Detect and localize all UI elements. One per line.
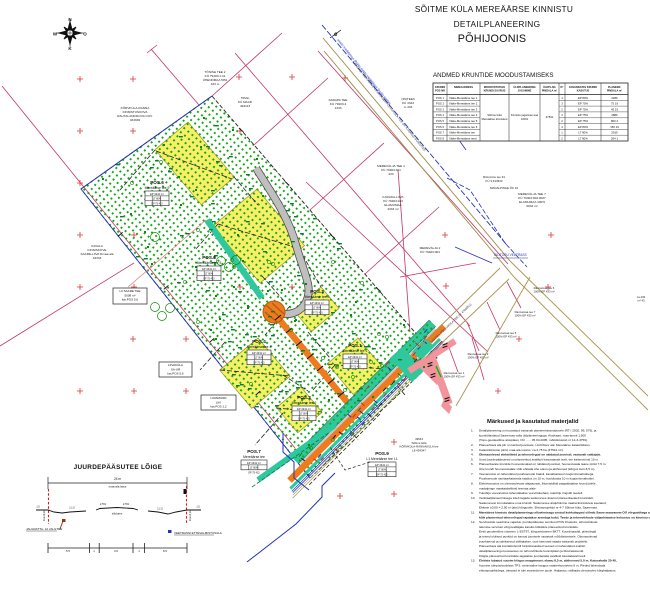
- svg-text:KASUTUS: KASUTUS: [577, 88, 590, 92]
- svg-text:24 m: 24 m: [114, 477, 121, 481]
- svg-text:Tuletõrje veevarustus lahendat: Tuletõrje veevarustus lahendatakse veevõ…: [479, 491, 583, 495]
- svg-text:LT 80%: LT 80%: [313, 307, 322, 310]
- svg-text:LT 80%: LT 80%: [300, 413, 309, 416]
- svg-text:EP 75 415: EP 75 415: [311, 312, 323, 315]
- svg-text:Mereäärse tee 5: Mereäärse tee 5: [197, 261, 222, 265]
- svg-text:433: 433: [388, 172, 393, 176]
- svg-text:talumise servituut võrguvaldaj: talumise servituut võrguvaldajate kasuks…: [479, 525, 579, 529]
- svg-text:kat.POS 1,2: kat.POS 1,2: [210, 404, 227, 408]
- svg-text:NIMI/AADRESS: NIMI/AADRESS: [454, 85, 473, 89]
- svg-text:Mereäärse tee 1: Mereäärse tee 1: [343, 349, 368, 353]
- svg-text:LT 80%: LT 80%: [250, 467, 259, 470]
- svg-text:Väike-Mereäärse teed: Väike-Mereäärse teed: [449, 136, 477, 140]
- svg-text:detailplaneeringu koosseisus o: detailplaneeringu koosseisus on tehnovõr…: [479, 549, 584, 553]
- svg-text:POS 3: POS 3: [436, 107, 444, 111]
- svg-text:EP 4341 m²: EP 4341 m²: [297, 407, 311, 411]
- svg-text:EP 75%: EP 75%: [578, 119, 589, 123]
- svg-text:VEETRASSI ETTEVALMISTUSALA: VEETRASSI ETTEVALMISTUSALA: [174, 531, 222, 535]
- svg-text:EP 75 415: EP 75 415: [376, 474, 388, 477]
- svg-text:LT 80%: LT 80%: [378, 469, 387, 472]
- svg-text:ehitusprojektidega, väravad ei: ehitusprojektidega, väravad ei tohi avan…: [479, 568, 616, 572]
- svg-text:TALITORU VEETRASS: TALITORU VEETRASS: [493, 253, 526, 257]
- svg-text:Mereäärse tee 3: Mereäärse tee 3: [305, 295, 330, 299]
- svg-text:O: O: [83, 32, 87, 37]
- svg-text:2.5%: 2.5%: [123, 502, 130, 506]
- svg-text:POS.1: POS.1: [348, 343, 362, 348]
- svg-text:433 m: 433 m: [211, 82, 220, 86]
- svg-text:L8 434347: L8 434347: [412, 448, 426, 452]
- svg-text:860 2: 860 2: [611, 119, 618, 123]
- svg-text:Katastriüksuste piirid, maa-al: Katastriüksuste piirid, maa-ala suurus: …: [479, 448, 564, 452]
- svg-text:45 19: 45 19: [611, 107, 618, 111]
- svg-text:kooskõlastatud Saaremaa valla: kooskõlastatud Saaremaa valla üldplaneer…: [479, 433, 586, 437]
- svg-text:POS 6: POS 6: [436, 125, 444, 129]
- svg-text:POS 8: POS 8: [436, 136, 444, 140]
- svg-text:10.: 10.: [471, 496, 475, 500]
- svg-text:JUURDEPÄÄSUTEE LÕIGE: JUURDEPÄÄSUTEE LÕIGE: [74, 462, 163, 471]
- svg-text:POS.9: POS.9: [375, 451, 389, 456]
- svg-text:madalpinge maakaabelliinid tee: madalpinge maakaabelliinid teemaa alale.: [479, 486, 537, 490]
- svg-text:KÜ 3,434543: KÜ 3,434543: [486, 179, 503, 183]
- svg-text:Märkused ja kasutatud materjal: Märkused ja kasutatud materjalid: [487, 419, 579, 425]
- svg-text:LT 80%: LT 80%: [153, 198, 162, 201]
- svg-text:Väike-Mereäärse tee 3: Väike-Mereäärse tee 3: [449, 107, 478, 111]
- svg-text:EP 75 415: EP 75 415: [203, 278, 215, 281]
- svg-text:krundi piir: krundi piir: [188, 510, 192, 521]
- svg-text:Mereäärse kinnistu detailplane: Mereäärse kinnistu detailplaneeringu ell…: [479, 510, 650, 514]
- svg-text:Ühe krundi hoonestusalale võib: Ühe krundi hoonestusalale võib ehitada ü…: [479, 467, 595, 471]
- svg-text:EP 4341 m²: EP 4341 m²: [202, 267, 216, 271]
- svg-text:Puurkaevude sanitaarkaitseala: Puurkaevude sanitaarkaitseala raadius on…: [479, 477, 595, 481]
- svg-text:kat.POS 5,6: kat.POS 5,6: [122, 297, 139, 301]
- svg-text:Mereäärse tee 4: Mereäärse tee 4: [247, 345, 272, 349]
- svg-text:KRUNDI SUURUS: KRUNDI SUURUS: [484, 88, 506, 92]
- svg-text:L1 Mereäärse tee L1: L1 Mereäärse tee L1: [366, 457, 397, 461]
- svg-text:EP 75 415: EP 75 415: [151, 203, 163, 206]
- svg-text:Veevarustus on lahendatud puur: Veevarustus on lahendatud puurkaevude ba…: [479, 472, 594, 476]
- svg-text:5.5: 5.5: [66, 549, 70, 553]
- svg-text:Planeeritava ala piir on kantu: Planeeritava ala piir on kantud joonisel…: [479, 443, 591, 447]
- svg-text:8.5: 8.5: [163, 549, 167, 553]
- svg-text:POS 1: POS 1: [436, 96, 444, 100]
- svg-text:Mereäärse tee 2: Mereäärse tee 2: [292, 401, 317, 405]
- svg-text:100% EP 433 m²: 100% EP 433 m²: [467, 356, 488, 360]
- svg-text:47541: 47541: [546, 115, 554, 119]
- svg-text:JAGAMINE: JAGAMINE: [518, 88, 532, 92]
- svg-text:Kõigile planeeritud kruntidele: Kõigile planeeritud kruntidele tagatakse…: [479, 554, 586, 558]
- svg-text:EP 4341 m²: EP 4341 m²: [252, 351, 266, 355]
- svg-text:Vertikaalplaneerimisega tuleb: Vertikaalplaneerimisega tuleb tagada sad…: [479, 496, 594, 500]
- svg-text:KRUNDI: KRUNDI: [435, 85, 445, 89]
- svg-text:2.5%: 2.5%: [100, 502, 107, 506]
- svg-text:Planeeritavate kruntide hoones: Planeeritavate kruntide hoonestusalad on…: [479, 462, 606, 466]
- svg-text:maa-ala laius: maa-ala laius: [109, 485, 127, 489]
- svg-text:POS.8: POS.8: [202, 255, 216, 260]
- svg-text:Väike-Mereäärse tee 1: Väike-Mereäärse tee 1: [449, 96, 478, 100]
- svg-text:Väike-Mereäärse tee: Väike-Mereäärse tee: [449, 131, 475, 135]
- svg-text:POS.6: POS.6: [150, 180, 164, 185]
- svg-text:43333: 43333: [93, 256, 102, 260]
- svg-text:MADALPINGE ÕK 34: MADALPINGE ÕK 34: [490, 185, 518, 190]
- svg-text:4.: 4.: [471, 453, 474, 457]
- svg-text:2886: 2886: [611, 113, 618, 117]
- svg-text:POS 5: POS 5: [436, 119, 444, 123]
- svg-text:8.: 8.: [471, 482, 474, 486]
- svg-text:2.: 2.: [471, 443, 474, 447]
- svg-text:Väike-Mereäärse tee 5: Väike-Mereäärse tee 5: [449, 119, 478, 123]
- svg-text:Mereäärse tee: Mereäärse tee: [243, 455, 265, 459]
- svg-text:PÕHIJOONIS: PÕHIJOONIS: [458, 32, 527, 45]
- svg-text:PINDALA m²: PINDALA m²: [542, 88, 557, 92]
- svg-text:100% EP 433 m²: 100% EP 433 m²: [533, 290, 554, 294]
- svg-text:Olemasolevad elektriliinid ja: Olemasolevad elektriliinid ja tehnovõrgu…: [479, 453, 601, 457]
- svg-text:EP 4341 m²: EP 4341 m²: [348, 355, 362, 359]
- svg-text:kõik planeeritud tehnovõrgud r: kõik planeeritud tehnovõrgud rajatakse a…: [479, 515, 650, 519]
- svg-text:Sademevesi immutatakse oma kru: Sademevesi immutatakse oma krundil. Sade…: [479, 501, 607, 505]
- svg-text:EP 75 415: EP 75 415: [253, 362, 265, 365]
- svg-text:150 19: 150 19: [610, 125, 619, 129]
- svg-text:EP 4341 m²: EP 4341 m²: [247, 461, 261, 465]
- svg-text:SÕITME KÜLA MEREÄÄRSE KINNISTU: SÕITME KÜLA MEREÄÄRSE KINNISTU: [415, 4, 573, 14]
- svg-text:100%: 100%: [521, 117, 529, 121]
- svg-text:493113: 493113: [240, 104, 250, 108]
- svg-text:5.: 5.: [471, 457, 474, 461]
- svg-text:sõidutee: sõidutee: [112, 512, 123, 516]
- svg-text:4.5: 4.5: [114, 549, 118, 553]
- svg-text:1:1.5: 1:1.5: [69, 507, 75, 510]
- svg-text:Ehitiste ±0.00 = 2,50 m (abs): Ehitiste ±0.00 = 2,50 m (abs) kõrgusele.…: [479, 506, 598, 510]
- svg-text:75 19: 75 19: [611, 102, 618, 106]
- svg-text:3.: 3.: [471, 448, 474, 452]
- svg-text:POS NR: POS NR: [435, 88, 445, 92]
- svg-text:1.: 1.: [471, 429, 474, 433]
- svg-text:EP 80%: EP 80%: [578, 125, 589, 129]
- svg-text:Väike-Mereäärse tee 6: Väike-Mereäärse tee 6: [449, 125, 478, 129]
- svg-text:Uued juurdepääsuteed on planee: Uued juurdepääsuteed on planeeritud aval…: [479, 457, 599, 461]
- svg-text:6.: 6.: [471, 462, 474, 466]
- svg-text:100% EP 433 m²: 100% EP 433 m²: [514, 314, 535, 318]
- svg-text:puurkaevud ja salvkaevud säili: puurkaevud ja salvkaevud säilitatakse, u…: [479, 539, 588, 543]
- svg-text:POS.2: POS.2: [297, 395, 311, 400]
- svg-text:JALGRATTA- JA JALGTEE: JALGRATTA- JA JALGTEE: [26, 527, 62, 531]
- svg-text:13.: 13.: [471, 559, 475, 563]
- svg-text:POS.3: POS.3: [310, 289, 324, 294]
- svg-text:Mereäärse tee 9: Mereäärse tee 9: [145, 186, 170, 190]
- svg-text:Servituutide seadmise vajadus:: Servituutide seadmise vajadus: juurdepää…: [479, 520, 598, 524]
- svg-text:433949: 433949: [130, 118, 141, 122]
- svg-text:PINDALA m²: PINDALA m²: [607, 88, 622, 92]
- svg-text:2286: 2286: [611, 96, 618, 100]
- svg-text:Eesti geodeetiline süsteem L-E: Eesti geodeetiline süsteem L-EST97, kõrg…: [479, 530, 596, 534]
- svg-text:POS.4: POS.4: [252, 339, 266, 344]
- svg-text:Väike-Mereäärse tee 4: Väike-Mereäärse tee 4: [449, 113, 478, 117]
- svg-text:EP 75 415: EP 75 415: [349, 366, 361, 369]
- svg-text:POS 2: POS 2: [436, 102, 444, 106]
- svg-text:Väike-Mereäärse tee 2: Väike-Mereäärse tee 2: [449, 102, 478, 106]
- svg-text:PLANEER.: PLANEER.: [608, 85, 621, 89]
- svg-text:LT 90%: LT 90%: [578, 136, 588, 140]
- svg-text:12.: 12.: [471, 520, 475, 524]
- svg-text:ja teised olulised punktid on: ja teised olulised punktid on kantud joo…: [478, 535, 597, 539]
- svg-text:264 1: 264 1: [611, 136, 618, 140]
- svg-text:(Topo-geodeetiline alusplaan,: (Topo-geodeetiline alusplaan, OÜ ...... …: [479, 438, 588, 442]
- svg-text:EP 75%: EP 75%: [578, 107, 589, 111]
- svg-text:krundi piir: krundi piir: [42, 510, 46, 521]
- svg-text:N°: N°: [561, 85, 564, 89]
- svg-text:EP 75%: EP 75%: [578, 102, 589, 106]
- svg-text:EP 4341 m²: EP 4341 m²: [150, 192, 164, 196]
- svg-text:KÜ 79403:004: KÜ 79403:004: [420, 250, 440, 254]
- svg-text:100% EP 433 m²: 100% EP 433 m²: [443, 375, 464, 379]
- svg-text:POS 7: POS 7: [436, 131, 444, 135]
- svg-text:Ehitiste lubatud suurim kõrgus: Ehitiste lubatud suurim kõrgus maapinnas…: [479, 559, 617, 563]
- svg-text:EP 4341 m²: EP 4341 m²: [375, 463, 389, 467]
- svg-text:1:1.5: 1:1.5: [157, 508, 163, 511]
- svg-text:2919: 2919: [611, 131, 618, 135]
- svg-text:Planeeritava ala kontaktvööndi: Planeeritava ala kontaktvööndi funktsion…: [479, 544, 586, 548]
- svg-text:DETAILPLANEERING: DETAILPLANEERING: [454, 19, 541, 29]
- svg-text:KAVANDATAV KRUNDI: KAVANDATAV KRUNDI: [569, 85, 597, 89]
- svg-text:ANDMED KRUNTIDE MOODUSTAMISEKS: ANDMED KRUNTIDE MOODUSTAMISEKS: [433, 72, 554, 79]
- svg-text:1343: 1343: [335, 106, 342, 110]
- svg-text:LT 80%: LT 80%: [351, 361, 360, 364]
- svg-text:EP 4341 m²: EP 4341 m²: [310, 301, 324, 305]
- svg-text:EP 75 415: EP 75 415: [298, 418, 310, 421]
- svg-text:LT 80%: LT 80%: [255, 357, 264, 360]
- svg-text:9.: 9.: [471, 491, 474, 495]
- svg-text:EP 75 415: EP 75 415: [248, 472, 260, 475]
- svg-text:100% EP 433 m²: 100% EP 433 m²: [495, 335, 516, 339]
- svg-text:LT 90%: LT 90%: [578, 131, 588, 135]
- svg-text:POS.7: POS.7: [247, 449, 261, 454]
- svg-text:Elektrivarustus on olemasoleva: Elektrivarustus on olemasolevast alajaam…: [479, 482, 597, 486]
- svg-text:4333 m²: 4333 m²: [387, 207, 398, 211]
- svg-text:6004 m²: 6004 m²: [526, 204, 537, 208]
- svg-text:7.: 7.: [471, 472, 474, 476]
- svg-text:kat.POS 5,6: kat.POS 5,6: [167, 371, 184, 375]
- svg-text:POS 4: POS 4: [436, 113, 444, 117]
- svg-text:11.: 11.: [471, 510, 475, 514]
- svg-text:Mereäärse kinnistust: Mereäärse kinnistust: [482, 117, 508, 121]
- svg-text:Detailplaneering on koostatud: Detailplaneering on koostatud vastavalt …: [479, 429, 597, 433]
- svg-text:m 433: m 433: [404, 105, 413, 109]
- svg-text:EP 75%: EP 75%: [578, 113, 589, 117]
- svg-text:hoonete tulepüsivusklass TP3,: hoonete tulepüsivusklass TP3, minimaalne…: [479, 563, 605, 567]
- svg-text:MOODUSTATAVA: MOODUSTATAVA: [484, 85, 505, 89]
- svg-text:m² 43: m² 43: [637, 299, 645, 303]
- svg-text:EP 80%: EP 80%: [578, 96, 589, 100]
- svg-text:N: N: [68, 17, 71, 22]
- svg-text:LT 80%: LT 80%: [205, 273, 214, 276]
